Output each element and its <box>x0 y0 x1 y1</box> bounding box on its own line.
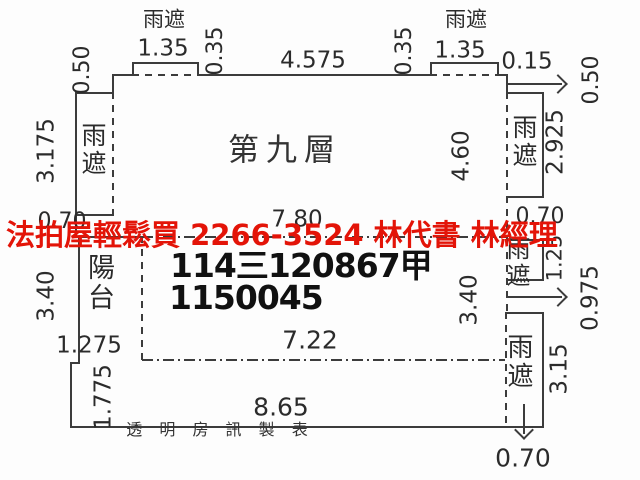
dim-main-height-right: 4.60 <box>451 130 474 181</box>
balcony-label: 陽台 <box>85 253 112 313</box>
dim-bottom-height: 1.775 <box>93 364 116 430</box>
wall-line <box>132 62 198 64</box>
dim-bottom-width: 8.65 <box>253 395 309 420</box>
canopy-label-left: 雨遮 <box>80 122 105 178</box>
dim-right-step2: 0.975 <box>580 265 603 331</box>
wall-line <box>507 312 543 314</box>
dim-right-canopy-height: 2.925 <box>545 109 568 175</box>
wall-line <box>113 74 132 76</box>
dashed-line <box>112 92 114 216</box>
dim-right-offset: 0.15 <box>501 51 552 74</box>
wall-line <box>112 74 114 94</box>
case-number-line2: 1150045 <box>169 281 323 314</box>
maker-credit: 透 明 房 訊 製 表 <box>126 422 313 438</box>
dim-top-right-canopy-height: 0.35 <box>394 27 416 76</box>
dim-top-left-canopy-height: 0.35 <box>205 27 227 76</box>
arrow-down-icon <box>514 420 534 440</box>
canopy-label-right-bottom: 雨遮 <box>505 333 531 391</box>
arrow-right-icon <box>548 74 568 94</box>
wall-line <box>507 196 543 198</box>
arrow-right-icon <box>548 287 568 307</box>
floor-label: 第九層 <box>228 136 342 167</box>
dashed-line <box>430 74 498 76</box>
dim-top-right-canopy-width: 1.35 <box>434 40 485 63</box>
dim-top-left-step: 0.50 <box>72 46 94 95</box>
dashed-line <box>132 74 198 76</box>
dim-right-bottom-canopy-height: 3.15 <box>549 343 572 394</box>
dim-right-bottom-canopy-width: 0.70 <box>495 446 551 471</box>
dim-mid-width: 7.22 <box>282 328 338 353</box>
ad-overlay-text: 法拍屋輕鬆買 2266-3524 林代書 林經理 <box>6 221 558 250</box>
dim-left-mid-height: 3.40 <box>36 270 59 321</box>
wall-line <box>75 92 77 216</box>
canopy-label-top-right: 雨遮 <box>445 10 487 31</box>
floor-plan: 第九層 雨遮 雨遮 雨遮 陽台 雨遮 雨遮 雨遮 1.35 0.35 0.50 … <box>0 0 640 480</box>
dashdot-line <box>142 359 505 361</box>
dim-right-step: 0.50 <box>581 56 603 105</box>
canopy-label-right-upper: 雨遮 <box>511 114 536 170</box>
canopy-label-top-left: 雨遮 <box>143 10 185 31</box>
dim-mid-height-right: 3.40 <box>459 274 482 325</box>
wall-line <box>542 312 544 427</box>
dim-top-left-canopy-width: 1.35 <box>137 38 188 61</box>
dim-balcony-width: 1.275 <box>56 335 122 358</box>
wall-line <box>507 92 543 94</box>
wall-line <box>70 362 72 428</box>
dim-top-width: 4.575 <box>280 50 346 73</box>
dashed-line <box>141 236 143 360</box>
dim-left-canopy-height: 3.175 <box>36 118 59 184</box>
